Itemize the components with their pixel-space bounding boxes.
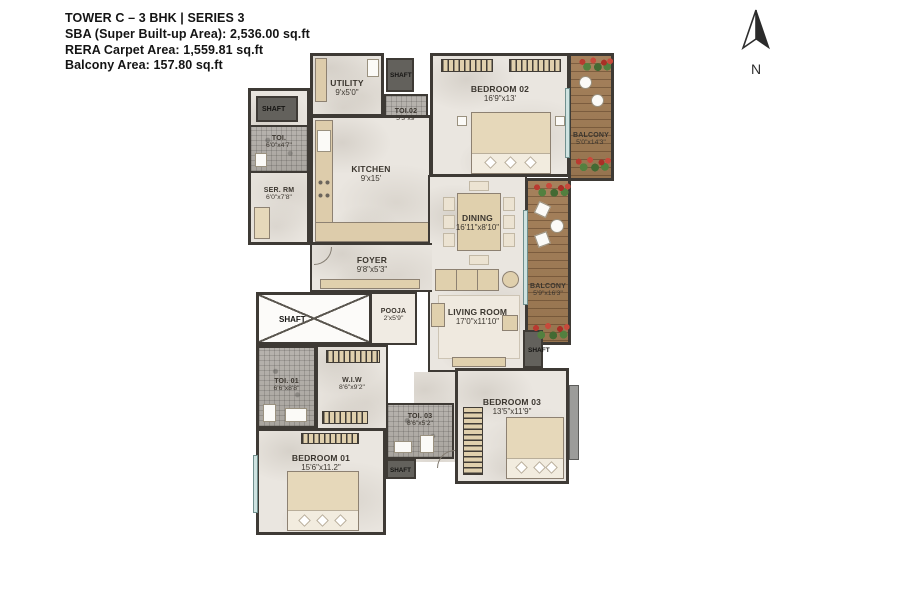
- north-compass: N: [731, 8, 781, 74]
- plan-balcony-area: Balcony Area: 157.80 sq.ft: [65, 58, 310, 74]
- room-annex: SHAFT TOI. 6'0"x4'7" SER. RM 6'0"x7'8": [248, 88, 310, 245]
- plan-rera: RERA Carpet Area: 1,559.81 sq.ft: [65, 43, 310, 59]
- pooja-dims: 2'x5'9": [372, 315, 415, 322]
- flower-planter: [573, 156, 611, 172]
- toilet-fixture: [255, 153, 267, 167]
- tv-unit: [452, 357, 506, 367]
- pouf: [579, 76, 592, 89]
- toilet-sink: [394, 441, 412, 453]
- bedroom-01-label: BEDROOM 01: [259, 453, 383, 463]
- bed: [254, 207, 270, 239]
- room-toi-03: TOI. 03 8'6"x5'2": [386, 403, 454, 459]
- dining-chair: [469, 181, 489, 191]
- bed: [287, 471, 359, 531]
- room-wiw: W.I.W 8'6"x9'2": [316, 345, 388, 430]
- utility-counter: [315, 58, 327, 102]
- balcony-table: [550, 219, 564, 233]
- toi-01-label: TOI. 01: [259, 378, 314, 385]
- foyer-cabinet: [320, 279, 420, 289]
- hob-stove: [317, 176, 331, 202]
- shaft-left-label: SHAFT: [262, 106, 285, 113]
- toi-02-label: TOI.02: [386, 108, 426, 115]
- room-bedroom-03: BEDROOM 03 13'5"x11'9": [455, 368, 569, 484]
- window: [253, 455, 258, 513]
- bedroom-02-dims: 16'9"x13': [433, 94, 567, 103]
- window: [565, 88, 570, 158]
- room-shaft-bottom: SHAFT: [386, 459, 416, 479]
- floor-plan-page: TOWER C – 3 BHK | SERIES 3 SBA (Super Bu…: [0, 0, 900, 600]
- bedroom-02-label: BEDROOM 02: [433, 84, 567, 94]
- toilet-fixture: [420, 435, 434, 453]
- dining-chair: [443, 197, 455, 211]
- bedroom-03-label: BEDROOM 03: [458, 397, 566, 407]
- foyer-dims: 9'8"x5'3": [312, 265, 432, 274]
- room-bedroom-01: BEDROOM 01 15'6"x11.2": [256, 428, 386, 535]
- toi-03-label: TOI. 03: [388, 413, 452, 420]
- armchair: [502, 315, 518, 331]
- balcony-right-dims: 5'9"x16'3": [528, 290, 568, 297]
- side-table: [502, 271, 519, 288]
- ser-rm-label: SER. RM: [251, 187, 307, 194]
- plan-sba: SBA (Super Built-up Area): 2,536.00 sq.f…: [65, 27, 310, 43]
- bedside-table: [457, 116, 467, 126]
- room-bedroom-02: BEDROOM 02 16'9"x13': [430, 53, 570, 177]
- sofa: [435, 269, 499, 291]
- room-living-dining: DINING 16'11"x8'10" LIVING ROOM 17'0"x11…: [428, 175, 527, 372]
- bed: [471, 112, 551, 174]
- room-ser-rm: SER. RM 6'0"x7'8": [251, 173, 307, 242]
- balcony-top-dims: 5'0"x14'3": [571, 139, 611, 146]
- plan-header: TOWER C – 3 BHK | SERIES 3 SBA (Super Bu…: [65, 11, 310, 74]
- kitchen-counter: [315, 222, 429, 242]
- kitchen-sink: [317, 130, 331, 152]
- armchair: [431, 303, 445, 327]
- room-balcony-top: BALCONY 5'0"x14'3": [568, 53, 614, 181]
- utility-sink: [367, 59, 379, 77]
- shaft-top-label: SHAFT: [390, 72, 412, 79]
- pouf: [591, 94, 604, 107]
- wardrobe: [463, 407, 483, 475]
- foyer-label: FOYER: [312, 255, 432, 265]
- wiw-dims: 8'6"x9'2": [318, 384, 386, 391]
- ser-rm-dims: 6'0"x7'8": [251, 194, 307, 201]
- room-utility: UTILITY 9'x5'0": [310, 53, 384, 117]
- balcony-chair: [534, 231, 551, 248]
- room-shaft-main: SHAFT: [256, 292, 372, 345]
- north-label: N: [731, 61, 781, 77]
- sliding-wardrobe: [569, 385, 579, 460]
- dining-chair: [443, 215, 455, 229]
- dining-chair: [503, 197, 515, 211]
- room-shaft-left: SHAFT: [256, 96, 298, 122]
- window: [523, 210, 528, 305]
- toi-01-dims: 6'6"x8'8": [259, 385, 314, 392]
- wardrobe: [322, 411, 368, 424]
- bed: [506, 417, 564, 479]
- toilet-fixture: [263, 404, 276, 422]
- shaft-mid-label: SHAFT: [528, 347, 550, 354]
- flower-planter: [531, 182, 571, 197]
- shaft-main-label: SHAFT: [279, 315, 306, 324]
- room-shaft-top: SHAFT: [386, 58, 414, 92]
- toi-left-label: TOI.: [251, 135, 307, 142]
- dining-chair: [503, 233, 515, 247]
- wardrobe: [326, 350, 380, 363]
- wardrobe: [301, 433, 359, 444]
- shaft-bottom-label: SHAFT: [390, 467, 411, 474]
- north-arrow-icon: [733, 8, 779, 56]
- door-arc: [314, 247, 332, 265]
- bedside-table: [555, 116, 565, 126]
- dining-table: [457, 193, 501, 251]
- wardrobe: [509, 59, 561, 72]
- pooja-label: POOJA: [372, 308, 415, 315]
- flower-planter: [530, 321, 570, 341]
- dining-chair: [503, 215, 515, 229]
- room-toi-01: TOI. 01 6'6"x8'8": [256, 345, 316, 428]
- room-kitchen: KITCHEN 9'x15': [310, 115, 432, 245]
- toi-03-dims: 8'6"x5'2": [388, 420, 452, 427]
- flower-planter: [577, 57, 613, 71]
- room-toi-left: TOI. 6'0"x4'7": [251, 125, 307, 173]
- room-pooja: POOJA 2'x5'9": [370, 292, 417, 345]
- plan-title: TOWER C – 3 BHK | SERIES 3: [65, 11, 310, 27]
- room-balcony-right: BALCONY 5'9"x16'3": [525, 178, 571, 345]
- wardrobe: [441, 59, 493, 72]
- wiw-label: W.I.W: [318, 377, 386, 384]
- dining-chair: [443, 233, 455, 247]
- balcony-chair: [534, 201, 551, 218]
- toi-left-dims: 6'0"x4'7": [251, 142, 307, 149]
- room-foyer: FOYER 9'8"x5'3": [310, 243, 432, 292]
- balcony-top-label: BALCONY: [571, 132, 611, 139]
- dining-chair: [469, 255, 489, 265]
- toilet-sink: [285, 408, 307, 422]
- balcony-right-label: BALCONY: [528, 283, 568, 290]
